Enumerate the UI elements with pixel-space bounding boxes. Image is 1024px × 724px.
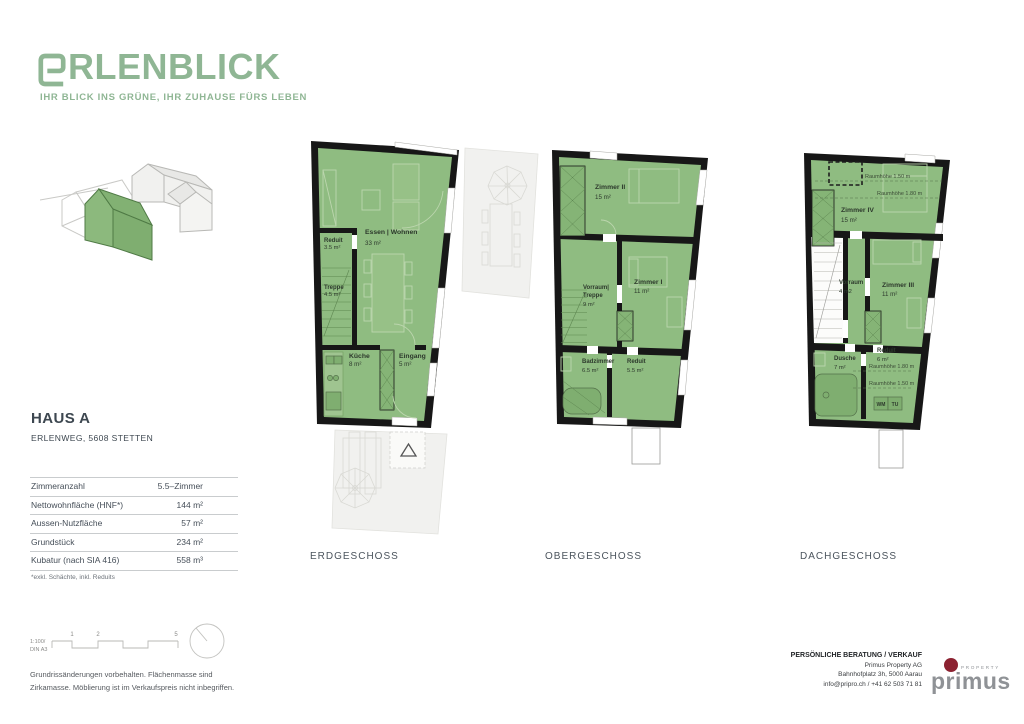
room-area: 9 m² [583,302,595,308]
brochure-page: RLENBLICK IHR BLICK INS GRÜNE, IHR ZUHAU… [0,0,1024,724]
brand-logo: RLENBLICK [38,52,66,88]
site-plan-3d [40,140,250,310]
room-area: 4 m2 [839,289,852,295]
property-title: HAUS A [31,410,90,427]
room-area: 4.5 m² [324,292,340,298]
primus-logo-wordmark: primus [931,670,1011,692]
room-area: 3.5 m² [324,245,340,251]
room-label: Badzimmer [582,359,615,365]
door-gap [845,344,855,352]
room-label: Essen | Wohnen [365,229,417,236]
spec-row: Aussen-Nutzfläche 57 m² [30,514,238,533]
door-gap [861,354,866,366]
door-gap [603,234,616,242]
room-area: 8 m² [349,361,361,368]
scale-mark: 2 [96,632,100,638]
room-label: Zimmer IV [841,207,874,214]
room-label: Vorraum| [583,285,609,291]
room-area: 5 m² [399,361,411,368]
dryer-label: TU [892,402,899,408]
scale-sheet: DIN A3 [30,647,47,653]
spec-label: Nettowohnfläche (HNF*) [31,497,123,515]
room-label: Vorraum [839,280,863,286]
door-gap [352,235,357,249]
roof-void [812,190,834,246]
door-gap [617,285,622,303]
spec-value: 5.5–Zimmer [158,478,203,496]
room-label: Reduit [324,238,343,244]
spec-label: Aussen-Nutzfläche [31,515,102,533]
north-compass-icon [190,624,224,658]
door-gap [850,231,862,239]
scale-ratio: 1:100/ [30,639,46,645]
spec-label: Zimmeranzahl [31,478,85,496]
room-area: 11 m² [634,288,649,295]
floor-label-dachgeschoss: DACHGESCHOSS [800,551,897,562]
room-label: Zimmer III [882,282,914,289]
disclaimer-line: Zirkamasse. Möblierung ist im Verkaufspr… [30,681,234,694]
spec-row: Grundstück 234 m² [30,533,238,552]
spec-label: Kubatur (nach SIA 416) [31,552,119,570]
room-label: Treppe [583,293,603,299]
room-label: Zimmer II [595,184,625,191]
shaft [617,311,633,341]
spec-row: Kubatur (nach SIA 416) 558 m³ [30,551,238,571]
door-gap [627,347,638,355]
floor-label-erdgeschoss: ERDGESCHOSS [310,551,399,562]
shaft [380,350,394,410]
disclaimer: Grundrissänderungen vorbehalten. Flächen… [30,668,234,694]
room-area: 15 m² [841,217,857,224]
spec-row: Zimmeranzahl 5.5–Zimmer [30,477,238,496]
spec-value: 144 m² [177,497,203,515]
terrace-right [462,148,538,298]
roof-height-label: Raumhöhe 1.80 m [869,364,915,370]
terrace-bottom [332,430,447,534]
floor-plan-dachgeschoss: WM TU Raumhöhe 1.50 m Raumhöhe 1.80 m Zi… [795,148,970,478]
spec-value: 234 m² [177,534,203,552]
washer-label: WM [877,402,886,408]
specs-table: Zimmeranzahl 5.5–Zimmer Nettowohnfläche … [30,477,238,571]
spec-value: 558 m³ [177,552,203,570]
door-gap [865,278,870,296]
room-area: 11 m² [882,291,897,298]
scale-mark: 1 [70,632,74,638]
room-area: 33 m² [365,240,381,247]
stair-void [560,166,585,236]
spec-label: Grundstück [31,534,74,552]
room-label: Dusche [834,356,856,362]
floor-plan-erdgeschoss: Reduit 3.5 m² Treppe 4.5 m² Essen | Wohn… [305,138,540,548]
shaft [865,311,881,343]
contact-phone[interactable]: info@pripro.ch / +41 62 503 71 81 [722,680,922,690]
room-label: Treppe [324,285,344,291]
floor-plan-obergeschoss: Zimmer II 15 m² Vorraum| Treppe 9 m² Zim… [545,145,720,485]
scale-bar: 1:100/ DIN A3 1 2 5 [25,618,240,668]
scale-mark: 5 [174,632,178,638]
entrance-door [392,417,417,426]
spec-row: Nettowohnfläche (HNF*) 144 m² [30,496,238,515]
room-area: 6.5 m² [582,368,598,374]
room-label: Küche [349,353,370,360]
room-area: 15 m² [595,194,611,201]
roof-height-label: Raumhöhe 1.80 m [877,191,923,197]
laundry-appliances: WM TU [874,397,902,410]
room-label: Zimmer I [634,279,662,286]
primus-logo: PROPERTY primus [930,656,1015,701]
door-gap [587,346,598,354]
room-area: 6 m² [877,357,889,363]
brand-tagline: IHR BLICK INS GRÜNE, IHR ZUHAUSE FÜRS LE… [40,92,307,103]
roof-height-label: Raumhöhe 1.50 m [865,174,911,180]
window [593,417,627,425]
disclaimer-line: Grundrissänderungen vorbehalten. Flächen… [30,668,234,681]
room-area: 7 m² [834,365,846,371]
kitchen-counter [324,352,343,416]
spec-value: 57 m² [181,515,203,533]
contact-block: PERSÖNLICHE BERATUNG / VERKAUF Primus Pr… [722,651,922,689]
chimney [879,430,903,468]
room-area: 5.5 m² [627,368,643,374]
spec-footnote: *exkl. Schächte, inkl. Reduits [31,574,115,581]
property-address: ERLENWEG, 5608 STETTEN [31,433,153,443]
room-label: Reduit [627,359,646,365]
chimney [632,428,660,464]
contact-address: Bahnhofplatz 3h, 5000 Aarau [722,670,922,680]
room-label: Reduit [877,348,896,354]
erlenblick-logo-icon [38,52,66,88]
door-gap [843,320,848,338]
contact-company: Primus Property AG [722,661,922,671]
brand-logo-text: RLENBLICK [68,49,280,85]
floor-label-obergeschoss: OBERGESCHOSS [545,551,642,562]
parasol-icon [335,468,375,508]
contact-header: PERSÖNLICHE BERATUNG / VERKAUF [722,651,922,661]
roof-height-label: Raumhöhe 1.50 m [869,381,915,387]
room-label: Eingang [399,353,426,360]
